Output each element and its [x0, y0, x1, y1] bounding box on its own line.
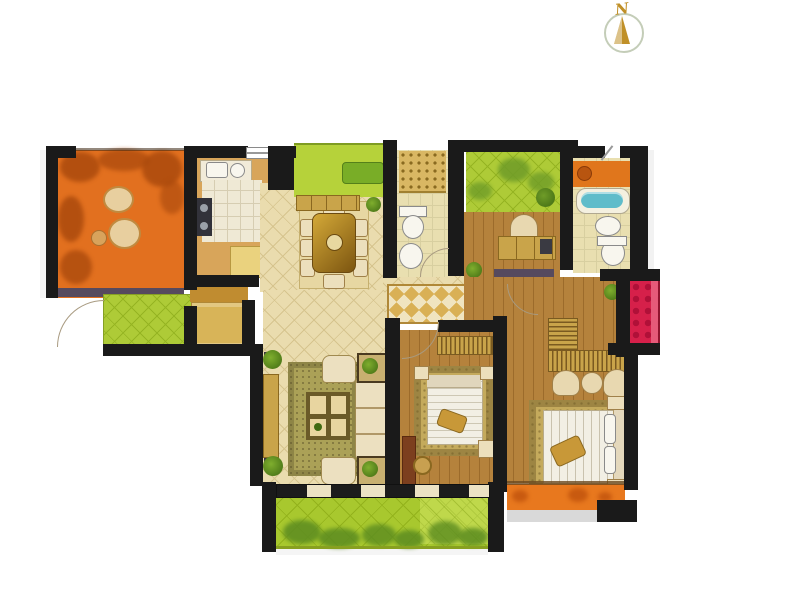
service-balcony-red-light: [651, 281, 658, 343]
wall: [600, 269, 660, 281]
wall: [630, 146, 648, 273]
sofa: [355, 378, 387, 460]
nightstand: [414, 366, 429, 380]
desk-monitor: [540, 239, 552, 254]
coffee-table-pane: [309, 395, 327, 415]
bush: [283, 520, 321, 544]
bush: [362, 524, 396, 546]
terrace-stool: [91, 230, 107, 246]
wall: [250, 344, 263, 486]
wall: [488, 482, 504, 552]
bathtub-water: [581, 192, 623, 208]
floor-plan-canvas: N: [0, 0, 800, 611]
wall: [438, 320, 494, 332]
wall: [197, 275, 259, 287]
armchair: [322, 355, 356, 383]
armchair: [321, 457, 356, 485]
compass-north-arrow-highlight-icon: [614, 16, 622, 44]
refrigerator: [230, 246, 264, 278]
wall: [573, 146, 605, 158]
coffee-table-pane: [309, 418, 327, 438]
bathroom-sink: [595, 216, 621, 236]
foliage-blob: [58, 196, 84, 242]
wall: [383, 140, 397, 278]
wall: [608, 343, 660, 355]
wall-pillar: [268, 146, 294, 190]
terrace-chair: [108, 218, 141, 249]
terrace-chair: [103, 186, 134, 213]
balcony-decor-blob: [512, 490, 528, 502]
stove-burner: [200, 204, 208, 212]
plant: [263, 350, 282, 369]
tv-cabinet: [263, 374, 279, 458]
foliage-blob: [60, 250, 92, 284]
pillow: [604, 446, 616, 474]
kitchen-window: [246, 147, 270, 159]
plant: [362, 461, 378, 477]
dresser-stool: [413, 456, 432, 475]
bed-pillow-band: [427, 375, 481, 388]
coffee-table: [306, 392, 350, 440]
coffee-table-pane: [330, 418, 348, 438]
plant: [466, 262, 482, 278]
plant: [366, 197, 381, 212]
compass-north-label: N: [609, 0, 635, 20]
balcony-decor-blob: [568, 488, 588, 502]
entry-threshold: [190, 286, 248, 302]
dining-table-plate: [326, 234, 343, 251]
wall: [103, 344, 263, 356]
bush: [318, 528, 360, 548]
entry-mat: [191, 302, 249, 348]
shower-area: [399, 151, 446, 193]
wall: [448, 146, 464, 276]
plant: [263, 456, 283, 476]
garden-bush: [536, 188, 555, 207]
entry-door-arc: [57, 300, 104, 347]
nightstand: [607, 396, 625, 410]
wall: [560, 152, 573, 270]
bush: [458, 528, 488, 546]
balcony-shadow: [507, 510, 599, 522]
bathroom-sink: [399, 243, 423, 269]
master-balcony-sill: [507, 481, 624, 485]
kitchen-basin: [230, 163, 245, 178]
pouf-chair: [581, 372, 603, 394]
wall-shadow: [648, 150, 654, 270]
counter-basket: [577, 166, 592, 181]
table-plant-dot: [314, 423, 322, 431]
sliding-door-strip: [276, 484, 490, 498]
bush: [428, 521, 462, 545]
book-shelf: [437, 336, 493, 355]
dining-chair: [323, 274, 345, 289]
wall: [385, 318, 400, 490]
toilet-tank: [597, 236, 627, 246]
garden-leaf-blob: [468, 182, 492, 200]
garden-leaf-blob: [498, 158, 530, 182]
kitchen-sink: [206, 162, 228, 178]
stove-burner: [200, 222, 208, 230]
wall: [597, 500, 637, 522]
sideboard: [296, 195, 360, 211]
wall: [184, 146, 197, 266]
coffee-table-pane: [330, 395, 348, 415]
wall-shadow: [276, 549, 488, 555]
wall: [46, 146, 58, 298]
foliage-blob: [160, 180, 184, 214]
wardrobe-vertical: [548, 318, 578, 354]
wall-shadow: [40, 150, 46, 298]
garden-bench: [342, 162, 384, 184]
terrace-green: [103, 294, 194, 348]
toilet-bowl: [402, 215, 424, 239]
wall: [262, 482, 276, 552]
wall: [624, 355, 638, 490]
terrace-railing: [58, 148, 184, 151]
pillow: [604, 414, 616, 444]
wall: [46, 146, 76, 158]
plant: [362, 358, 378, 374]
wall: [493, 316, 507, 492]
shoe-cabinet: [242, 300, 255, 346]
wall: [184, 306, 197, 346]
pouf-chair: [552, 370, 580, 396]
wall: [448, 140, 578, 152]
wall: [184, 264, 197, 290]
wall: [184, 146, 248, 158]
